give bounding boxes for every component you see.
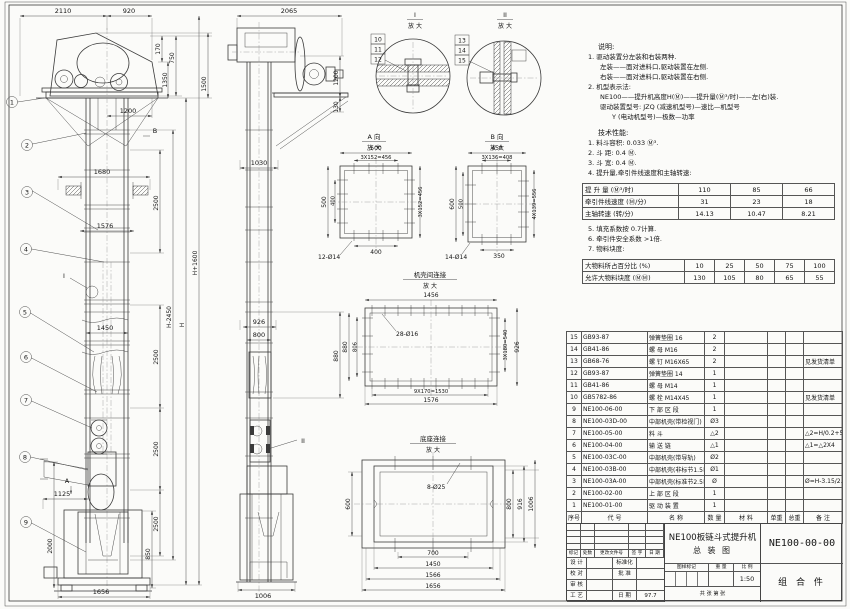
bom-cell: 1 <box>705 500 725 512</box>
bom-cell <box>786 476 804 488</box>
sign-value <box>587 569 613 580</box>
spec-label: 提 升 量 (Ⓜ³/时) <box>583 184 679 196</box>
spec-value: 75 <box>775 260 805 272</box>
bom-cell <box>804 368 843 380</box>
tech-line: 5. 填充系数按 0.7计算. <box>582 224 840 234</box>
spec-label: 大物料所占百分比 (%) <box>583 260 685 272</box>
table-row: 4NE100-03B-00中部机壳(非标节1.5Ⓜ,1Ⓜ)Ø1 <box>567 464 843 476</box>
section-label-a: A <box>65 477 70 485</box>
bom-cell <box>786 344 804 356</box>
bom-cell: 1 <box>567 500 582 512</box>
dim-label: 1656 <box>93 588 110 596</box>
spec-value: 100 <box>805 260 835 272</box>
sign-value <box>637 580 664 591</box>
lump-table: 大物料所占百分比 (%)10255075100允许大物料块度 (ⓂⓂ)13010… <box>582 259 835 284</box>
bom-header-cell: 备 注 <box>804 512 843 524</box>
base-joint-view: 底座连接 放 大 8-Ø25 600 800 916 1006 700 1450… <box>345 434 539 592</box>
sheet-title: 总 装 图 <box>665 545 760 556</box>
bom-cell: Ø2 <box>705 452 725 464</box>
bom-cell: 2 <box>705 332 725 344</box>
balloon-label: 11 <box>374 47 382 54</box>
dim-label: 1200 <box>120 107 137 115</box>
bom-cell: △1=△2X4 <box>804 440 843 452</box>
dim-label: 1125 <box>54 490 71 498</box>
sign-label: 批 准 <box>613 569 637 580</box>
bom-header-cell: 数 量 <box>705 512 725 524</box>
bom-cell: NE100-01-00 <box>582 500 648 512</box>
sign-value <box>637 558 664 569</box>
rev-header-cell: 处数 <box>581 550 595 558</box>
engineering-drawing-sheet: 2110 920 170 750 1350 1500 1200 B 1680 1… <box>0 0 850 609</box>
bom-cell <box>804 332 843 344</box>
spec-value: 66 <box>783 184 835 196</box>
view-b: B 向 放 大 450 3X136=408 600 500 4X139=556 … <box>445 132 538 261</box>
table-row: 15GB93-87弹簧垫圈 162 <box>567 332 843 344</box>
part-type: 组 合 件 <box>761 564 843 602</box>
revision-header-row: 标记 处数 更改文件号 签 字 日 期 <box>567 550 664 558</box>
sign-label: 审 核 <box>567 580 587 591</box>
bom-cell: 1 <box>705 488 725 500</box>
bom-cell <box>768 332 786 344</box>
bom-cell: 螺 钉 M16X65 <box>648 356 705 368</box>
dim-label: 1576 <box>423 397 438 404</box>
bom-cell: 9 <box>567 404 582 416</box>
bom-cell: 13 <box>567 356 582 368</box>
dim-label: 920 <box>123 7 135 15</box>
bom-header-cell: 序号 <box>567 512 582 524</box>
bom-cell: Ø3 <box>705 416 725 428</box>
bom-cell <box>786 488 804 500</box>
bom-cell <box>768 476 786 488</box>
bom-cell <box>804 380 843 392</box>
bom-cell <box>725 440 768 452</box>
balloon-label: 10 <box>374 37 382 44</box>
dim-label: 400 <box>370 249 382 256</box>
bom-cell: GB5782-86 <box>582 392 648 404</box>
dim-label: 450 <box>491 145 503 152</box>
note-line: NE100——提升机高度H(Ⓜ)——提升量(Ⓜ³/时)——左(右)装. <box>582 92 840 102</box>
dim-label: 3X152=456 <box>418 186 424 217</box>
dim-label: 1006 <box>255 592 272 600</box>
table-row: 13GB68-76螺 钉 M16X652见发货清单 <box>567 356 843 368</box>
spec-value: 23 <box>731 196 783 208</box>
bom-cell: 1 <box>705 368 725 380</box>
signature-row: 校 对 批 准 <box>567 569 664 580</box>
bom-cell: 输 送 链 <box>648 440 705 452</box>
bom-cell: 1 <box>705 392 725 404</box>
sign-label: 工 艺 <box>567 591 587 602</box>
bom-cell: NE100-03D-00 <box>582 416 648 428</box>
sign-label <box>613 580 637 591</box>
bom-cell: GB41-86 <box>582 380 648 392</box>
bom-cell: △2=H/0.2+5.75 <box>804 428 843 440</box>
spec-table-row: 提 升 量 (Ⓜ³/时)1108566 <box>583 184 835 196</box>
bom-cell <box>786 464 804 476</box>
spec-table-row: 牵引件线速度 (Ⓜ/分)312318 <box>583 196 835 208</box>
bom-cell: 螺 母 M14 <box>648 380 705 392</box>
dim-label: 880 <box>333 350 340 362</box>
title-block: 标记 处数 更改文件号 签 字 日 期 设 计 标准化 校 对 批 准 审 核 … <box>566 523 842 601</box>
table-row: 10GB5782-86螺 栓 M14X451见发货清单 <box>567 392 843 404</box>
note-line: 驱动装置型号: JZQ (减速机型号)—速比—机型号 <box>582 102 840 112</box>
bom-cell <box>768 440 786 452</box>
spec-value: 85 <box>731 184 783 196</box>
bom-cell <box>786 500 804 512</box>
bom-cell: 弹簧垫圈 16 <box>648 332 705 344</box>
bom-cell <box>786 356 804 368</box>
view-zoom-label: 放 大 <box>423 282 437 290</box>
bom-cell: 螺 母 M16 <box>648 344 705 356</box>
spec-label: 允许大物料块度 (ⓂⓂ) <box>583 272 685 284</box>
dim-label: 1450 <box>97 324 114 332</box>
bom-cell: NE100-02-00 <box>582 488 648 500</box>
stamp-header-row: 图样标记 重 量 比 例 <box>665 564 760 572</box>
dim-label: 916 <box>517 498 524 510</box>
dim-label: 500 <box>459 199 465 209</box>
bom-cell: 弹簧垫圈 14 <box>648 368 705 380</box>
dim-label: 926 <box>514 341 521 353</box>
bom-cell <box>768 452 786 464</box>
bom-cell: 10 <box>567 392 582 404</box>
sheet-count-note: 共 张 第 张 <box>665 587 760 602</box>
signature-row: 设 计 标准化 <box>567 558 664 569</box>
bom-cell <box>768 416 786 428</box>
sign-value <box>637 569 664 580</box>
revision-rows <box>567 524 664 550</box>
bom-cell: NE100-06-00 <box>582 404 648 416</box>
stamp-value-row: 1:50 <box>665 572 760 587</box>
bom-cell <box>725 416 768 428</box>
title-block-left: 标记 处数 更改文件号 签 字 日 期 设 计 标准化 校 对 批 准 审 核 … <box>567 524 665 602</box>
side-elevation-view: 2065 1200 130 1030 926 800 880 II <box>228 7 348 600</box>
bom-cell: 螺 栓 M14X45 <box>648 392 705 404</box>
detail-callout-ii: II <box>301 437 305 445</box>
bom-cell <box>725 344 768 356</box>
spec-value: 50 <box>745 260 775 272</box>
dim-label: 1006 <box>528 496 535 511</box>
bom-cell <box>786 440 804 452</box>
bom-cell <box>804 452 843 464</box>
bom-cell <box>725 356 768 368</box>
tech-line: 3. 斗 宽: 0.4 Ⓜ. <box>582 158 840 168</box>
bom-cell <box>768 500 786 512</box>
spec-label: 主轴转速 (转/分) <box>583 208 679 220</box>
bom-cell <box>725 404 768 416</box>
mark-boxes <box>665 572 709 586</box>
note-line: 左装——面对进料口,驱动装置在左侧. <box>582 62 840 72</box>
spec-value: 80 <box>745 272 775 284</box>
view-a: A 向 放 大 500 3X152=456 500 400 3X152=456 … <box>318 132 424 261</box>
bom-cell: 2 <box>705 344 725 356</box>
dim-label: 500 <box>321 196 328 208</box>
stamp-label: 图样标记 <box>665 564 709 571</box>
bom-cell: 下 部 区 段 <box>648 404 705 416</box>
speed-table: 提 升 量 (Ⓜ³/时)1108566牵引件线速度 (Ⓜ/分)312318主轴转… <box>582 183 835 220</box>
detail-callout-i: I <box>63 272 65 280</box>
bom-cell: 4 <box>567 464 582 476</box>
dim-label: 1576 <box>97 222 114 230</box>
balloon-label: 8 <box>23 453 27 461</box>
bom-cell: GB68-76 <box>582 356 648 368</box>
bom-cell: Ø <box>705 476 725 488</box>
dim-label: 800 <box>506 498 513 510</box>
dim-label: 170 <box>155 43 162 55</box>
view-title: A 向 <box>367 132 380 141</box>
sign-label: 标准化 <box>613 558 637 569</box>
note-line: Y (电动机型号)—极数—功率 <box>582 112 840 122</box>
dim-label: 2500 <box>153 441 160 456</box>
spec-value: 8.21 <box>783 208 835 220</box>
spec-value: 25 <box>715 260 745 272</box>
bom-cell <box>804 500 843 512</box>
bom-table: 15GB93-87弹簧垫圈 16214GB41-86螺 母 M16213GB68… <box>566 331 842 524</box>
balloon-label: 1 <box>10 98 14 106</box>
bom-cell: 7 <box>567 428 582 440</box>
spec-value: 130 <box>685 272 715 284</box>
bom-cell: NE100-03B-00 <box>582 464 648 476</box>
bom-cell: 6 <box>567 440 582 452</box>
detail-title: II <box>503 11 507 19</box>
signature-row: 审 核 <box>567 580 664 591</box>
table-row: 12GB93-87弹簧垫圈 141 <box>567 368 843 380</box>
bom-cell: 2 <box>567 488 582 500</box>
balloon-label: 2 <box>25 141 29 149</box>
bom-cell: 中部机壳(带检视门) <box>648 416 705 428</box>
dim-label: 1200 <box>333 70 340 85</box>
sign-label: 日 期 <box>613 591 637 602</box>
bom-cell <box>725 392 768 404</box>
weight-value <box>709 572 734 586</box>
title-block-right: NE100-00-00 组 合 件 <box>761 524 843 602</box>
spec-value: 105 <box>715 272 745 284</box>
speed-table-body: 提 升 量 (Ⓜ³/时)1108566牵引件线速度 (Ⓜ/分)312318主轴转… <box>583 184 835 220</box>
dim-label: 3X180=540 <box>503 329 509 360</box>
detail-title: I <box>414 11 416 19</box>
spec-table-row: 大物料所占百分比 (%)10255075100 <box>583 260 835 272</box>
balloon-label: 13 <box>458 38 466 45</box>
bom-cell: 料 斗 <box>648 428 705 440</box>
dim-label: 600 <box>345 498 352 510</box>
bom-cell <box>768 344 786 356</box>
balloon-label: 4 <box>24 245 28 253</box>
dim-label: 1566 <box>425 572 440 579</box>
drawing-title: NE100板链斗式提升机 总 装 图 <box>665 524 760 564</box>
bom-cell: △2 <box>705 428 725 440</box>
bom-cell <box>768 428 786 440</box>
bom-cell: 驱 动 装 置 <box>648 500 705 512</box>
dim-label: 2500 <box>153 516 160 531</box>
dim-label: 750 <box>169 52 176 64</box>
sign-value <box>587 591 613 602</box>
bom-cell <box>804 488 843 500</box>
bom-header-cell: 单重 <box>768 512 786 524</box>
spec-table-row: 允许大物料块度 (ⓂⓂ)130105806555 <box>583 272 835 284</box>
bom-cell <box>804 464 843 476</box>
dim-label: 700 <box>427 550 439 557</box>
table-row: 9NE100-06-00下 部 区 段1 <box>567 404 843 416</box>
notes-title: 说明: <box>582 42 840 52</box>
bom-cell: Ø=H-3.15/2.5 <box>804 476 843 488</box>
bom-cell <box>786 380 804 392</box>
dim-label: 2000 <box>47 538 54 553</box>
dim-label: 1656 <box>425 583 440 590</box>
hole-callout: 28-Ø16 <box>396 331 418 338</box>
bom-header-row: 序号 代 号 名 称 数 量 材 料 单重 总重 备 注 <box>567 512 843 524</box>
tech-line: 2. 斗 距: 0.4 Ⓜ. <box>582 148 840 158</box>
bom-cell <box>725 488 768 500</box>
sign-value <box>587 580 613 591</box>
tech-line: 7. 物料块度: <box>582 244 840 254</box>
table-row: 6NE100-04-00输 送 链△1△1=△2X4 <box>567 440 843 452</box>
table-row: 1NE100-01-00驱 动 装 置1 <box>567 500 843 512</box>
dim-label: 2500 <box>153 349 160 364</box>
bom-cell: 14 <box>567 344 582 356</box>
bom-cell <box>804 344 843 356</box>
dim-label: 3X136=408 <box>481 155 512 161</box>
bom-cell: 中部机壳(标准节2.5Ⓜ) <box>648 476 705 488</box>
sign-label: 设 计 <box>567 558 587 569</box>
bom-cell: NE100-03C-00 <box>582 452 648 464</box>
dim-label: 800 <box>253 331 265 339</box>
tech-line: 4. 提升量,牵引件线速度和主轴转速: <box>582 168 840 178</box>
spec-value: 110 <box>679 184 731 196</box>
spec-table-row: 主轴转速 (转/分)14.1310.478.21 <box>583 208 835 220</box>
table-row: 7NE100-05-00料 斗△2△2=H/0.2+5.75 <box>567 428 843 440</box>
balloon-label: 15 <box>458 58 466 65</box>
dim-label: 130 <box>333 101 340 113</box>
balloon-label: 5 <box>23 308 27 316</box>
section-label-b: B <box>153 127 157 135</box>
drawing-number: NE100-00-00 <box>761 524 843 564</box>
bom-cell <box>786 428 804 440</box>
balloon-label: 9 <box>24 518 28 526</box>
bom-cell: NE100-04-00 <box>582 440 648 452</box>
bom-cell <box>768 488 786 500</box>
bom-cell: 15 <box>567 332 582 344</box>
tech-line: 6. 牵引件安全系数 >1倍. <box>582 234 840 244</box>
dim-label: 2500 <box>153 195 160 210</box>
bom-cell: 1 <box>705 380 725 392</box>
table-row: 14GB41-86螺 母 M162 <box>567 344 843 356</box>
spec-value: 10 <box>685 260 715 272</box>
detail-zoom-label: 放 大 <box>408 22 422 30</box>
bom-cell: GB93-87 <box>582 332 648 344</box>
bom-cell <box>768 380 786 392</box>
table-row: 11GB41-86螺 母 M141 <box>567 380 843 392</box>
bom-cell: NE100-03A-00 <box>582 476 648 488</box>
spec-value: 55 <box>805 272 835 284</box>
bom-cell: 1 <box>705 404 725 416</box>
bom-cell <box>725 368 768 380</box>
detail-i-view: I 放 大 10 11 12 <box>371 11 452 113</box>
dim-label: 1350 <box>162 72 169 87</box>
dim-label: 500 <box>370 145 382 152</box>
dim-label: 1680 <box>94 168 111 176</box>
casing-joint-view: 机壳间连接 放 大 1456 28-Ø16 880 806 3X180=540 … <box>342 270 521 406</box>
dim-label: 1500 <box>201 76 208 91</box>
note-line: 1. 驱动装置分左装和右装两种. <box>582 52 840 62</box>
bom-cell: 5 <box>567 452 582 464</box>
table-row: 5NE100-03C-00中部机壳(带导轨)Ø2 <box>567 452 843 464</box>
view-title: 机壳间连接 <box>414 270 447 279</box>
sign-label: 校 对 <box>567 569 587 580</box>
date-value: 97.7 <box>637 591 664 602</box>
product-title: NE100板链斗式提升机 <box>665 531 760 543</box>
bom-cell <box>786 368 804 380</box>
dim-label: 350 <box>493 253 505 260</box>
bom-cell: GB93-87 <box>582 368 648 380</box>
rev-header-cell: 签 字 <box>629 550 646 558</box>
bom-cell: 中部机壳(带导轨) <box>648 452 705 464</box>
dim-label: 1030 <box>251 159 268 167</box>
dim-label: H <box>179 323 186 328</box>
title-block-middle: NE100板链斗式提升机 总 装 图 图样标记 重 量 比 例 1:50 共 张… <box>665 524 761 602</box>
bom-cell <box>725 428 768 440</box>
dim-label: H-2450 <box>166 306 173 328</box>
balloon-label: 6 <box>24 353 28 361</box>
note-line: 右装——面对进料口,驱动装置在右侧. <box>582 72 840 82</box>
bom-cell <box>786 404 804 416</box>
bom-cell: 8 <box>567 416 582 428</box>
dim-label: 2065 <box>281 7 298 15</box>
bom-cell: Ø1 <box>705 464 725 476</box>
bom-cell: 中部机壳(非标节1.5Ⓜ,1Ⓜ) <box>648 464 705 476</box>
tech-line: 1. 料斗容积: 0.033 Ⓜ³. <box>582 138 840 148</box>
balloon-label: 12 <box>374 57 382 64</box>
rev-header-cell: 日 期 <box>646 550 664 558</box>
dim-label: 880 <box>342 341 349 353</box>
bom-cell: 见发货清单 <box>804 392 843 404</box>
hole-callout: 8-Ø25 <box>427 484 446 491</box>
dim-label: 600 <box>449 198 456 210</box>
bom-header-cell: 总重 <box>786 512 804 524</box>
bom-cell <box>786 332 804 344</box>
bom-header-cell: 名 称 <box>648 512 705 524</box>
tech-lines: 1. 料斗容积: 0.033 Ⓜ³.2. 斗 距: 0.4 Ⓜ.3. 斗 宽: … <box>582 138 840 178</box>
bom-cell: 11 <box>567 380 582 392</box>
spec-value: 10.47 <box>731 208 783 220</box>
bom-cell <box>768 464 786 476</box>
dim-label: 9X170=1530 <box>414 389 448 395</box>
bom-cell <box>786 416 804 428</box>
bom-cell <box>786 452 804 464</box>
dim-label: 850 <box>145 548 152 560</box>
bom-cell <box>768 404 786 416</box>
bom-cell <box>768 392 786 404</box>
dim-label: H+1600 <box>192 250 199 275</box>
bom-cell <box>804 404 843 416</box>
hole-callout: 12-Ø14 <box>318 254 340 261</box>
dim-label: 1456 <box>423 292 438 299</box>
balloon-label: 14 <box>458 48 466 55</box>
rev-header-cell: 标记 <box>567 550 581 558</box>
bom-cell: 12 <box>567 368 582 380</box>
spec-value: 65 <box>775 272 805 284</box>
detail-zoom-label: 放 大 <box>498 22 512 30</box>
dim-label: 926 <box>253 318 265 326</box>
bom-cell: △1 <box>705 440 725 452</box>
spec-value: 14.13 <box>679 208 731 220</box>
dim-label: 1450 <box>425 561 440 568</box>
balloon-label: 3 <box>25 188 29 196</box>
bom-cell <box>768 356 786 368</box>
sign-value <box>587 558 613 569</box>
bom-cell <box>725 500 768 512</box>
spec-label: 牵引件线速度 (Ⓜ/分) <box>583 196 679 208</box>
bom-cell: 2 <box>705 356 725 368</box>
bom-cell: 3 <box>567 476 582 488</box>
bom-cell: NE100-05-00 <box>582 428 648 440</box>
